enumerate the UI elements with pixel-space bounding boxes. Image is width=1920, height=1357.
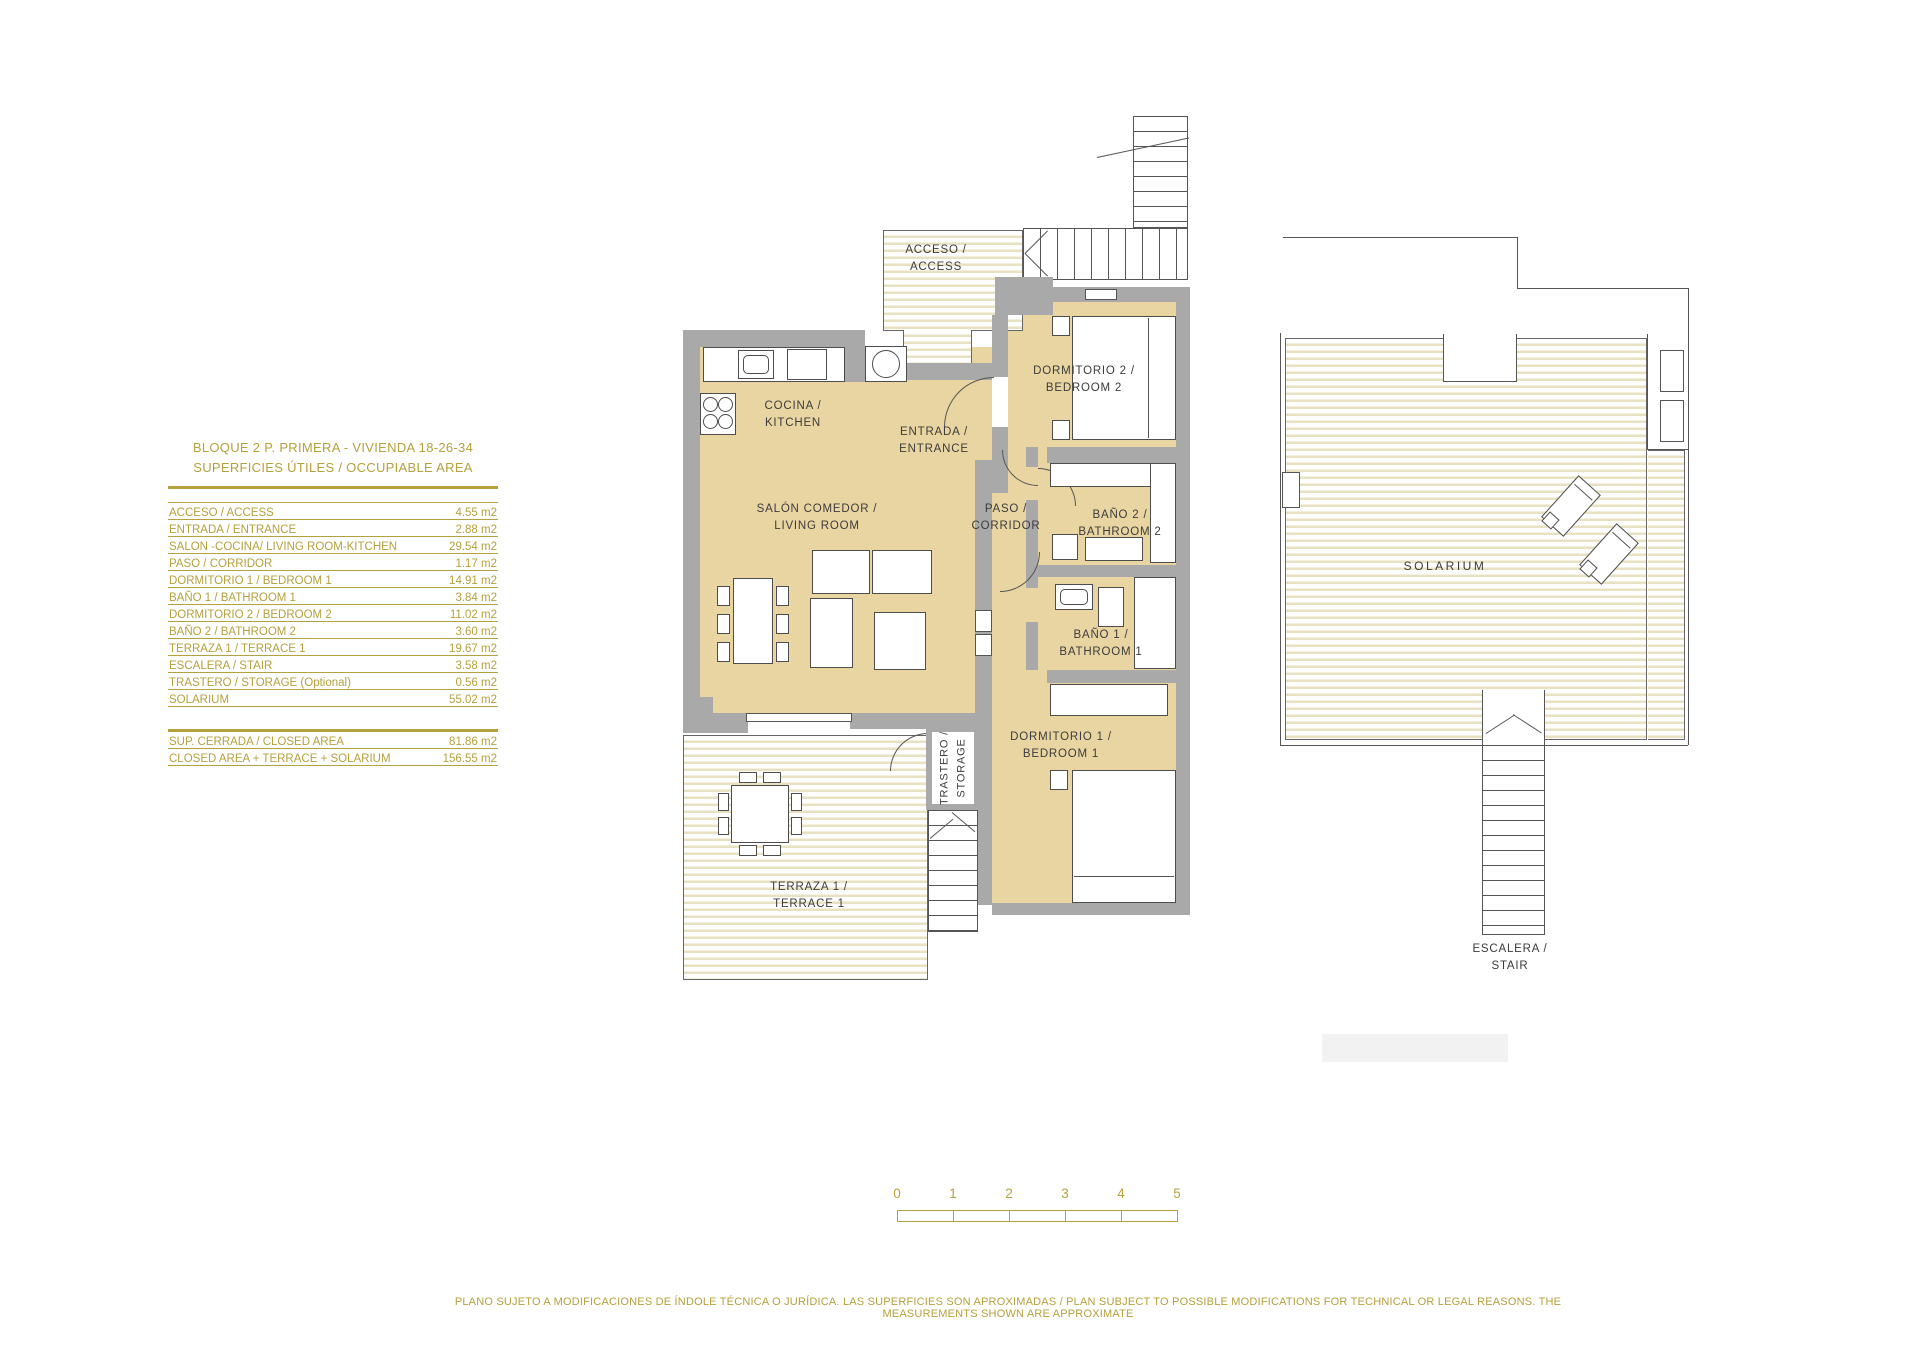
row-label: SALON -COCINA/ LIVING ROOM-KITCHEN: [169, 541, 397, 553]
exterior-stair-horizontal: [1023, 228, 1188, 280]
scale-tick: 4: [1117, 1186, 1125, 1201]
bath1-sink: [1055, 584, 1093, 610]
scale-tick: 0: [893, 1186, 901, 1201]
solarium-side-unit: [1660, 350, 1684, 392]
row-label: PASO / CORRIDOR: [169, 558, 272, 570]
scale-bar-rule: [897, 1210, 1178, 1222]
terrace-chair: [763, 772, 781, 783]
solarium-hatch-extension: [1648, 450, 1685, 740]
entry-door-opening: [992, 377, 1008, 427]
wall-left: [683, 330, 700, 715]
lounger-headrest-line: [1612, 532, 1631, 549]
terrace-chair: [739, 772, 757, 783]
row-label: ACCESO / ACCESS: [169, 507, 274, 519]
bed-bedroom1: [1072, 770, 1176, 903]
row-label: BAÑO 2 / BATHROOM 2: [169, 626, 296, 638]
room-label-entrance: ENTRADA / ENTRANCE: [899, 424, 969, 459]
wall-corridor-east-c: [1026, 622, 1038, 670]
row-value: 81.86 m2: [449, 736, 497, 748]
access-hatch-strip: [903, 330, 972, 364]
sofa-chaise: [810, 598, 853, 668]
wall-entry-upper: [992, 315, 1008, 377]
row-value: 3.84 m2: [455, 592, 497, 604]
room-label-access: ACCESO / ACCESS: [905, 242, 966, 277]
dining-chair: [717, 614, 730, 634]
wall-bath1-bedroom1: [1047, 670, 1176, 683]
solarium-stair-wall: [1544, 690, 1545, 935]
terrace-table: [731, 785, 789, 843]
summary-row: SUP. CERRADA / CLOSED AREA81.86 m2: [168, 732, 498, 749]
table-row: BAÑO 1 / BATHROOM 13.84 m2: [168, 588, 498, 605]
row-label: SUP. CERRADA / CLOSED AREA: [169, 736, 344, 748]
solarium-stair-landing: [1483, 690, 1544, 745]
dining-chair: [717, 642, 730, 662]
row-value: 3.60 m2: [455, 626, 497, 638]
row-label: DORMITORIO 2 / BEDROOM 2: [169, 609, 332, 621]
table-row: ENTRADA / ENTRANCE2.88 m2: [168, 520, 498, 537]
terrace-chair: [718, 793, 729, 811]
scale-divider: [953, 1211, 955, 1221]
room-label-kitchen: COCINA / KITCHEN: [765, 398, 822, 433]
living-wall-slot: [975, 634, 992, 656]
solarium-boundary: [1517, 288, 1688, 289]
dining-chair: [776, 586, 789, 606]
room-label-living: SALÓN COMEDOR / LIVING ROOM: [757, 501, 878, 536]
room-label-storage: TRASTERO / STORAGE: [937, 731, 970, 805]
room-label-terrace: TERRAZA 1 / TERRACE 1: [770, 879, 848, 914]
table-row: DORMITORIO 1 / BEDROOM 114.91 m2: [168, 571, 498, 588]
floorplan-page: BLOQUE 2 P. PRIMERA - VIVIENDA 18-26-34 …: [0, 0, 1920, 1357]
row-value: 1.17 m2: [455, 558, 497, 570]
table-title-line1: BLOQUE 2 P. PRIMERA - VIVIENDA 18-26-34: [168, 438, 498, 458]
nightstand: [1052, 420, 1070, 440]
solarium-boundary: [1280, 333, 1281, 745]
wall-bedroom1-left: [978, 715, 992, 905]
exterior-stair-vertical: [1133, 116, 1188, 228]
scale-tick: 2: [1005, 1186, 1013, 1201]
row-value: 19.67 m2: [449, 643, 497, 655]
row-label: SOLARIUM: [169, 694, 229, 706]
bedroom2-window: [1085, 289, 1117, 300]
room-label-solarium: SOLARIUM: [1404, 557, 1487, 575]
row-value: 55.02 m2: [449, 694, 497, 706]
scale-tick: 5: [1173, 1186, 1181, 1201]
faint-watermark: [1322, 1034, 1508, 1062]
table-row: TERRAZA 1 / TERRACE 119.67 m2: [168, 639, 498, 656]
bath2-toilet: [1052, 534, 1078, 560]
table-row: PASO / CORRIDOR1.17 m2: [168, 554, 498, 571]
coffee-table: [874, 612, 926, 670]
kitchen-oven: [787, 349, 827, 380]
terrace-chair: [718, 817, 729, 835]
row-label: BAÑO 1 / BATHROOM 1: [169, 592, 296, 604]
scale-tick: 3: [1061, 1186, 1069, 1201]
table-row: DORMITORIO 2 / BEDROOM 211.02 m2: [168, 605, 498, 622]
scale-divider: [1009, 1211, 1011, 1221]
wall-bedroom2-bath2: [1047, 447, 1176, 463]
kitchen-stove: [700, 393, 736, 435]
nightstand: [1050, 770, 1068, 790]
terrace-chair: [739, 845, 757, 856]
dining-chair: [717, 586, 730, 606]
sink-basin: [743, 355, 769, 374]
stove-burner: [703, 397, 718, 412]
row-value: 2.88 m2: [455, 524, 497, 536]
table-row: ACCESO / ACCESS4.55 m2: [168, 503, 498, 520]
row-value: 4.55 m2: [455, 507, 497, 519]
table-row: BAÑO 2 / BATHROOM 23.60 m2: [168, 622, 498, 639]
bath1-toilet: [1098, 587, 1124, 627]
table-row: TRASTERO / STORAGE (Optional)0.56 m2: [168, 673, 498, 690]
room-label-bedroom2: DORMITORIO 2 / BEDROOM 2: [1033, 363, 1135, 398]
terrace-hatch: [683, 735, 928, 980]
scale-divider: [1065, 1211, 1067, 1221]
row-value: 0.56 m2: [455, 677, 497, 689]
dining-chair: [776, 614, 789, 634]
wall-living-bottom-left: [683, 713, 748, 733]
bedroom1-wardrobe: [1050, 684, 1168, 716]
title-rule: [168, 486, 498, 489]
room-label-bedroom1: DORMITORIO 1 / BEDROOM 1: [1010, 729, 1112, 764]
row-value: 29.54 m2: [449, 541, 497, 553]
bath2-vanity: [1050, 463, 1160, 487]
wall-living-corridor: [975, 460, 992, 715]
table-row: SOLARIUM55.02 m2: [168, 690, 498, 707]
wall-bedroom1-bottom: [992, 903, 1190, 915]
row-label: CLOSED AREA + TERRACE + SOLARIUM: [169, 753, 391, 765]
wall-bath2-bath1: [1030, 565, 1176, 577]
terrace-sliding-door: [746, 713, 852, 722]
terrace-chair: [791, 817, 802, 835]
row-value: 156.55 m2: [443, 753, 497, 765]
scale-tick: 1: [949, 1186, 957, 1201]
solarium-side-unit: [1660, 400, 1684, 442]
wall-kitchen-stub: [845, 330, 865, 382]
wall-kitchen-top: [683, 330, 845, 347]
table-row: SALON -COCINA/ LIVING ROOM-KITCHEN29.54 …: [168, 537, 498, 554]
wall-bedroom2-top: [1050, 287, 1190, 302]
room-label-bathroom2: BAÑO 2 / BATHROOM 2: [1078, 507, 1161, 542]
area-summary: SUP. CERRADA / CLOSED AREA81.86 m2 CLOSE…: [168, 729, 498, 766]
area-table: BLOQUE 2 P. PRIMERA - VIVIENDA 18-26-34 …: [168, 438, 498, 766]
row-value: 14.91 m2: [449, 575, 497, 587]
lounger-headrest-line: [1574, 484, 1593, 501]
stove-burner: [718, 414, 733, 429]
nightstand: [1052, 316, 1070, 336]
room-label-corridor: PASO / CORRIDOR: [971, 501, 1040, 536]
room-label-bathroom1: BAÑO 1 / BATHROOM 1: [1059, 627, 1142, 662]
row-label: ESCALERA / STAIR: [169, 660, 272, 672]
row-value: 3.58 m2: [455, 660, 497, 672]
washer-drum: [872, 350, 900, 378]
stove-burner: [718, 397, 733, 412]
dining-table: [733, 578, 773, 664]
summary-row: CLOSED AREA + TERRACE + SOLARIUM156.55 m…: [168, 749, 498, 766]
solarium-hatch: [1285, 338, 1647, 740]
wall-right: [1176, 287, 1190, 915]
dining-chair: [776, 642, 789, 662]
wall-corner-block: [995, 277, 1053, 315]
room-label-stair: ESCALERA / STAIR: [1472, 941, 1547, 976]
stove-burner: [703, 414, 718, 429]
area-rows: ACCESO / ACCESS4.55 m2 ENTRADA / ENTRANC…: [168, 502, 498, 707]
sink-basin: [1060, 589, 1088, 605]
table-row: ESCALERA / STAIR3.58 m2: [168, 656, 498, 673]
row-label: DORMITORIO 1 / BEDROOM 1: [169, 575, 332, 587]
solarium-boundary: [1688, 288, 1689, 745]
row-label: TRASTERO / STORAGE (Optional): [169, 677, 351, 689]
solarium-stair-treads: [1483, 745, 1544, 935]
terrace-chair: [763, 845, 781, 856]
kitchen-sink: [738, 350, 774, 379]
disclaimer-text: PLANO SUJETO A MODIFICACIONES DE ÍNDOLE …: [408, 1296, 1608, 1320]
row-label: TERRAZA 1 / TERRACE 1: [169, 643, 306, 655]
sofa-section: [872, 550, 932, 594]
scale-divider: [1121, 1211, 1123, 1221]
row-label: ENTRADA / ENTRANCE: [169, 524, 296, 536]
washing-machine: [865, 346, 907, 382]
solarium-boundary: [1517, 237, 1518, 288]
sofa-section: [812, 550, 870, 594]
living-wall-slot: [975, 610, 992, 632]
table-title-line2: SUPERFICIES ÚTILES / OCCUPIABLE AREA: [168, 458, 498, 478]
bed2-pillow-line: [1148, 318, 1149, 438]
bed1-pillow-line: [1074, 876, 1174, 877]
solarium-notch: [1443, 334, 1517, 382]
row-value: 11.02 m2: [450, 609, 497, 621]
solarium-boundary: [1283, 237, 1517, 238]
terrace-chair: [791, 793, 802, 811]
solarium-planter: [1282, 472, 1300, 508]
